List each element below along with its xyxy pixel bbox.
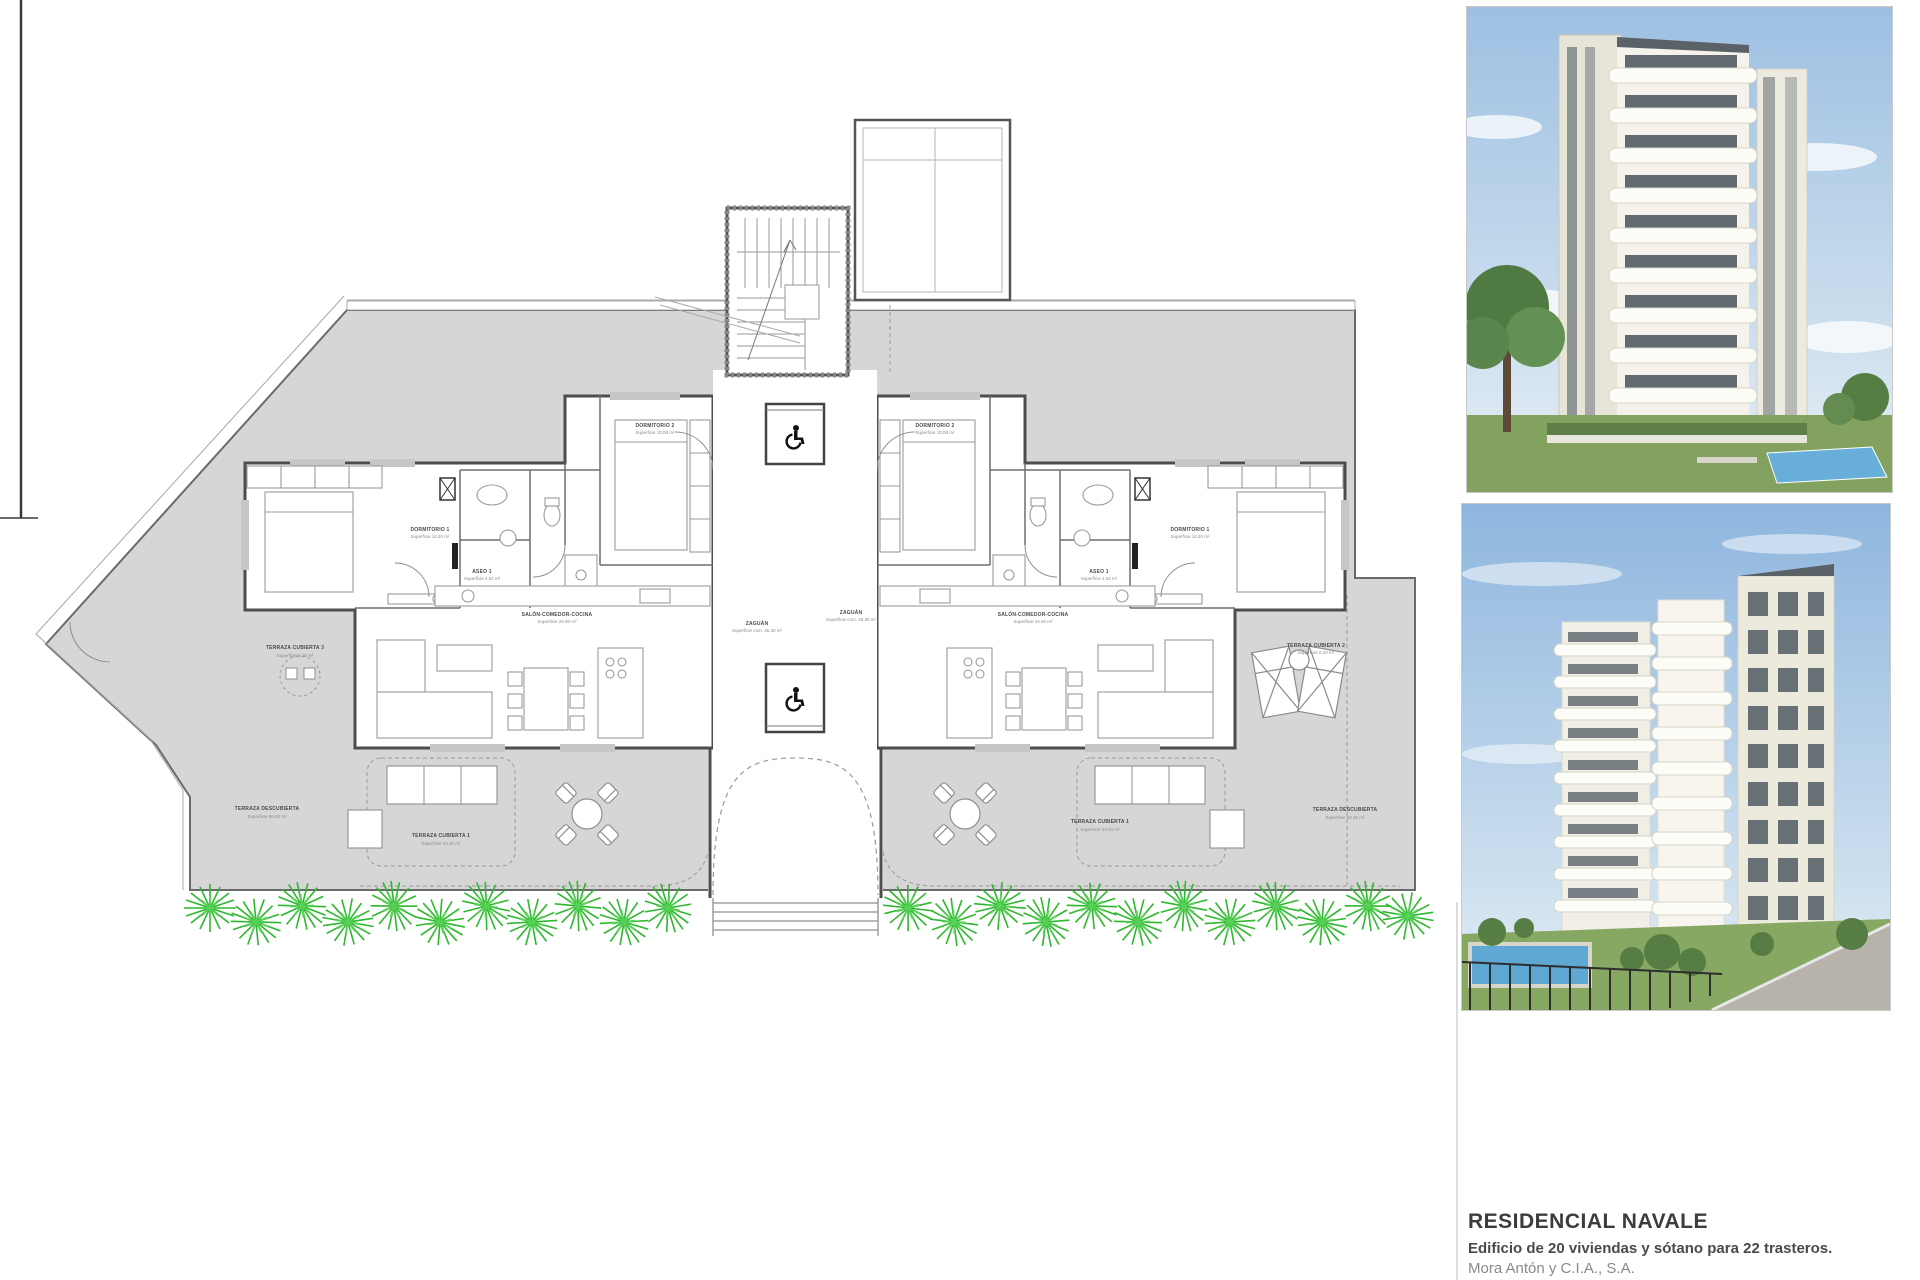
project-info: RESIDENCIAL NAVALE Edificio de 20 vivien… bbox=[1468, 1210, 1918, 1280]
svg-text:Superficie 9.20 m²: Superficie 9.20 m² bbox=[1298, 650, 1335, 655]
svg-text:Superficie com. 45.30 m²: Superficie com. 45.30 m² bbox=[826, 617, 877, 622]
svg-text:Superficie 24.60 m²: Superficie 24.60 m² bbox=[537, 619, 577, 624]
door-leaf-right bbox=[1132, 543, 1138, 569]
floor-plan: TERRAZA CUBIERTA 3 Superficie 6.15 m² TE… bbox=[0, 0, 1460, 1280]
svg-text:Superficie 24.60 m²: Superficie 24.60 m² bbox=[1013, 619, 1053, 624]
label-dormitorio2-right: DORMITORIO 2 bbox=[916, 423, 955, 429]
label-terraza-descubierta-right: TERRAZA DESCUBIERTA bbox=[1313, 807, 1378, 813]
building bbox=[1554, 564, 1834, 968]
project-subtitle: Edificio de 20 viviendas y sótano para 2… bbox=[1468, 1240, 1918, 1257]
svg-text:Superficie 94.35 m²: Superficie 94.35 m² bbox=[1325, 815, 1365, 820]
svg-text:Superficie 14.40 m²: Superficie 14.40 m² bbox=[410, 534, 450, 539]
svg-text:Superficie 86.00 m²: Superficie 86.00 m² bbox=[247, 814, 287, 819]
label-dormitorio2-left: DORMITORIO 2 bbox=[636, 423, 675, 429]
svg-text:Superficie 6.15 m²: Superficie 6.15 m² bbox=[277, 653, 314, 658]
elevator-upper bbox=[766, 404, 824, 464]
render-photo-bottom bbox=[1461, 503, 1891, 1011]
label-dormitorio1-right: DORMITORIO 1 bbox=[1171, 527, 1210, 533]
ground bbox=[1462, 918, 1890, 1010]
label-aseo1-left: ASEO 1 bbox=[472, 569, 492, 575]
svg-text:Superficie 10.08 m²: Superficie 10.08 m² bbox=[915, 430, 955, 435]
label-terraza-descubierta-left: TERRAZA DESCUBIERTA bbox=[235, 806, 300, 812]
ground bbox=[1467, 415, 1892, 492]
label-terraza-cubierta-1-right: TERRAZA CUBIERTA 1 bbox=[1071, 819, 1129, 825]
svg-text:Superficie 23.40 m²: Superficie 23.40 m² bbox=[1080, 827, 1120, 832]
drawing-sheet: TERRAZA CUBIERTA 3 Superficie 6.15 m² TE… bbox=[0, 0, 1920, 1280]
label-terraza-cubierta-3: TERRAZA CUBIERTA 3 bbox=[266, 645, 324, 651]
svg-text:Superficie 14.40 m²: Superficie 14.40 m² bbox=[1170, 534, 1210, 539]
project-company: Mora Antón y C.I.A., S.A. bbox=[1468, 1260, 1918, 1277]
label-terraza-cubierta-1-left: TERRAZA CUBIERTA 1 bbox=[412, 833, 470, 839]
svg-text:Superficie 4.62 m²: Superficie 4.62 m² bbox=[464, 576, 501, 581]
elevator-lower bbox=[766, 664, 824, 732]
label-terraza-cubierta-2: TERRAZA CUBIERTA 2 bbox=[1287, 643, 1345, 649]
label-aseo1-right: ASEO 1 bbox=[1089, 569, 1109, 575]
svg-text:Superficie 10.08 m²: Superficie 10.08 m² bbox=[635, 430, 675, 435]
pool bbox=[1767, 447, 1887, 483]
door-leaf-left bbox=[452, 543, 458, 569]
label-zaguan-right: ZAGUÁN bbox=[840, 609, 863, 616]
label-salon-left: SALÓN-COMEDOR-COCINA bbox=[522, 610, 593, 618]
entrance bbox=[708, 748, 883, 940]
label-salon-right: SALÓN-COMEDOR-COCINA bbox=[998, 610, 1069, 618]
svg-text:Superficie 23.40 m²: Superficie 23.40 m² bbox=[421, 841, 461, 846]
project-title: RESIDENCIAL NAVALE bbox=[1468, 1210, 1918, 1234]
building bbox=[1559, 35, 1807, 437]
label-zaguan-left: ZAGUÁN bbox=[746, 620, 769, 627]
render-photo-top bbox=[1466, 6, 1893, 493]
svg-text:Superficie com. 45.30 m²: Superficie com. 45.30 m² bbox=[732, 628, 783, 633]
label-dormitorio1-left: DORMITORIO 1 bbox=[411, 527, 450, 533]
svg-text:Superficie 4.62 m²: Superficie 4.62 m² bbox=[1081, 576, 1118, 581]
